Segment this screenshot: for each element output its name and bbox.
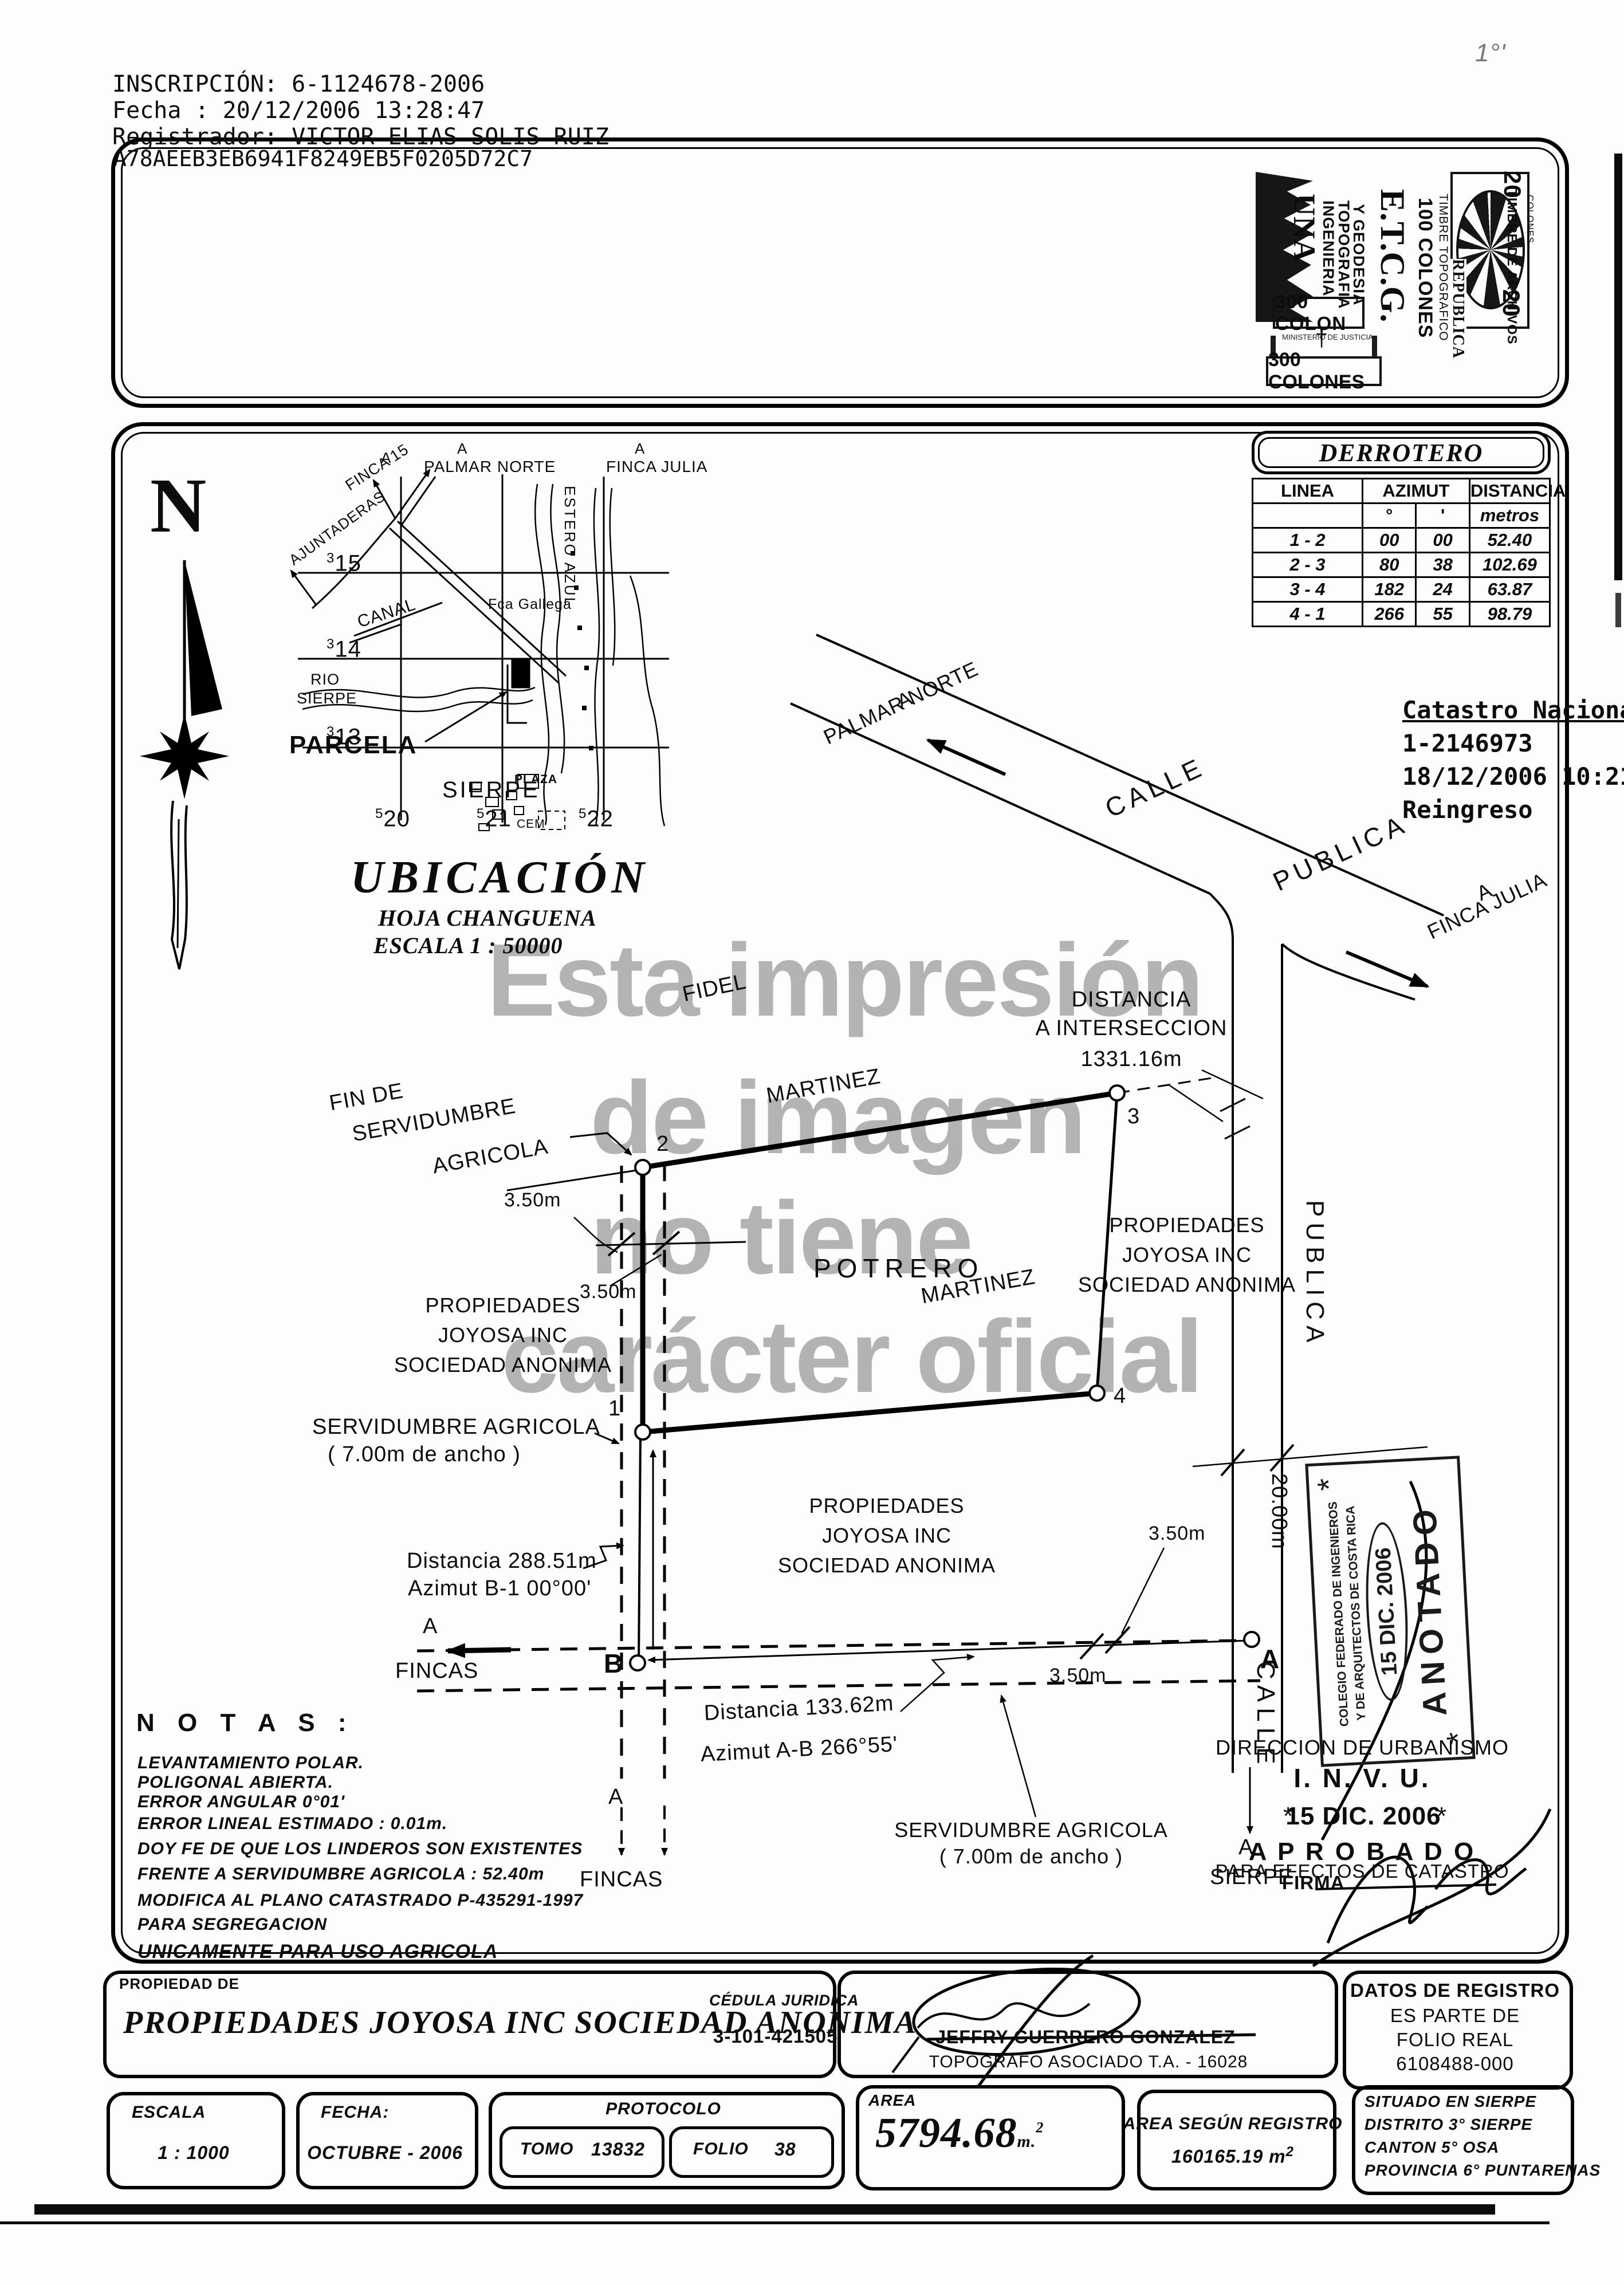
- label-point3: 3: [1127, 1106, 1140, 1128]
- derrotero-cell: 266: [1363, 602, 1416, 627]
- label-point1: 1: [608, 1398, 621, 1421]
- footer-surveyor-title: TOPÓGRAFO ASOCIADO T.A. - 16028: [929, 2053, 1248, 2071]
- stamp-ingenieria-text: INGENIERIA: [1320, 200, 1336, 297]
- stamp-300colones-text: 300 COLONES: [1268, 349, 1379, 394]
- label-owner-left2: JOYOSA INC: [438, 1324, 568, 1346]
- label-owner-bottom3: SOCIEDAD ANONIMA: [778, 1555, 996, 1576]
- north-letter: N: [150, 465, 207, 547]
- map-label-estero-azul: ESTERO AZUL: [562, 486, 577, 607]
- notas-l7: MODIFICA AL PLANO CATASTRADO P-435291-19…: [137, 1891, 583, 1910]
- notas-l5: DOY FE DE QUE LOS LINDEROS SON EXISTENTE…: [137, 1840, 583, 1858]
- notas-title: N O T A S :: [136, 1710, 355, 1736]
- label-point4: 4: [1114, 1385, 1126, 1408]
- notas-l4: ERROR LINEAL ESTIMADO : 0.01m.: [137, 1815, 447, 1833]
- hash-line: A78AEEB3EB6941F8249EB5F0205D72C7: [113, 148, 533, 171]
- label-owner-left3: SOCIEDAD ANONIMA: [394, 1354, 612, 1376]
- catastro-line3: 18/12/2006 10:21:33: [1402, 764, 1624, 789]
- stamp-geodesia-text: Y GEODESIA: [1351, 204, 1367, 306]
- stamp-republica-text: REPUBLICA: [1450, 259, 1466, 359]
- derrotero-row: 4 - 12665598.79: [1253, 602, 1550, 627]
- derrotero-cell: 63.87: [1469, 577, 1550, 602]
- footer-situado4: PROVINCIA 6° PUNTARENAS: [1365, 2162, 1601, 2178]
- stamp-colones-small: COLONES: [1524, 195, 1534, 243]
- ubicacion-hoja: HOJA CHANGUENA: [378, 906, 597, 930]
- label-servidumbre1b: ( 7.00m de ancho ): [328, 1444, 521, 1466]
- footer-registro-label: AREA SEGÚN REGISTRO: [1123, 2115, 1343, 2133]
- map-label-fca-gallega: Fca Gallega: [488, 597, 572, 612]
- anotado-star1: *: [1310, 1477, 1347, 1492]
- derrotero-title: DERROTERO: [1319, 438, 1484, 467]
- footer-situado2: DISTRITO 3° SIERPE: [1365, 2116, 1532, 2133]
- footer-escala-label: ESCALA: [132, 2103, 206, 2122]
- notas-l6: FRENTE A SERVIDUMBRE AGRICOLA : 52.40m: [137, 1865, 544, 1883]
- derrotero-cell: 00: [1363, 528, 1416, 553]
- registrar-line: Registrador: VICTOR ELIAS SOLIS RUIZ: [112, 125, 609, 149]
- invu-firma: FIRMA: [1282, 1873, 1344, 1893]
- footer-area-value: 5794.68m.2: [875, 2111, 1044, 2156]
- stamp-archivos-text: TIMBRE DE ARCHIVOS: [1505, 189, 1519, 344]
- map-label-a3: A: [635, 441, 645, 457]
- map-label-rio: RIO: [310, 671, 340, 687]
- derrotero-col-distancia: DISTANCIA: [1469, 479, 1550, 504]
- derrotero-cell: 52.40: [1469, 528, 1550, 553]
- footer-escala-value: 1 : 1000: [158, 2144, 229, 2163]
- label-azimut-b1: Azimut B-1 00°00': [408, 1578, 591, 1600]
- label-dist-b1: Distancia 288.51m: [407, 1550, 597, 1573]
- map-grid-522: 522: [579, 807, 614, 831]
- invu-efectos: PARA EFECTOS DE CATASTRO: [1216, 1862, 1509, 1882]
- catastro-line1: Catastro Nacional: [1402, 698, 1624, 723]
- map-grid-521: 521: [477, 807, 512, 831]
- label-20m: 20.00m: [1267, 1473, 1290, 1549]
- label-owner-bottom2: JOYOSA INC: [822, 1525, 951, 1547]
- justice-stamp-cross-icon: †: [1315, 327, 1328, 351]
- notas-l9: UNICAMENTE PARA USO AGRICOLA: [137, 1942, 498, 1962]
- footer-datos2: ES PARTE DE: [1390, 2006, 1520, 2026]
- label-350-2: 3.50m: [580, 1282, 637, 1303]
- map-grid-520: 520: [375, 807, 410, 831]
- handwritten-corner-mark: 1°': [1475, 40, 1505, 66]
- label-350-3: 3.50m: [1149, 1524, 1206, 1544]
- derrotero-row: 1 - 2000052.40: [1253, 528, 1550, 553]
- ubicacion-escala: ESCALA 1 : 50000: [373, 934, 563, 958]
- label-owner-bottom1: PROPIEDADES: [809, 1495, 964, 1517]
- footer-registro-value: 160165.19 m2: [1171, 2145, 1294, 2166]
- footer-datos4: 6108488-000: [1396, 2054, 1514, 2074]
- invu-direccion: DIRECCION DE URBANISMO: [1216, 1737, 1509, 1759]
- derrotero-row: 2 - 38038102.69: [1253, 553, 1550, 577]
- vertex-markers: [630, 1086, 1259, 1670]
- footer-registro-area-box: [1137, 2090, 1336, 2190]
- footer-propiedad-de: PROPIEDAD DE: [119, 1976, 239, 1992]
- ubicacion-title: UBICACIÓN: [351, 854, 649, 902]
- footer-surveyor-name: JEFFRY GUERRERO GONZALEZ: [935, 2028, 1236, 2047]
- map-label-cem: CEM: [517, 818, 545, 831]
- derrotero-cell: 1 - 2: [1253, 528, 1363, 553]
- derrotero-cell: 24: [1416, 577, 1469, 602]
- map-label-rio-sierpe: SIERPE: [297, 690, 357, 706]
- notas-l2: POLIGONAL ABIERTA.: [137, 1773, 333, 1792]
- label-owner-right2: JOYOSA INC: [1122, 1244, 1252, 1266]
- footer-fecha-label: FECHA:: [321, 2103, 389, 2122]
- footer-datos3: FOLIO REAL: [1397, 2030, 1513, 2050]
- label-a-fincas-bottom-a: A: [608, 1786, 623, 1809]
- derrotero-cell: 00: [1416, 528, 1469, 553]
- scanned-cadastral-plan: INSCRIPCIÓN: 6-1124678-2006 Fecha : 20/1…: [0, 0, 1624, 2285]
- stamp-etcg-text: E.T.C.G.: [1374, 189, 1410, 323]
- label-point2: 2: [656, 1133, 669, 1156]
- footer-tomo-label: TOMO: [520, 2140, 573, 2158]
- derrotero-cell: 55: [1416, 602, 1469, 627]
- anotado-word: ANOTADO: [1405, 1501, 1454, 1717]
- map-grid-315: 315: [327, 551, 361, 575]
- derrotero-table: DERROTERO LINEA AZIMUT DISTANCIA ° ' met…: [1252, 431, 1551, 627]
- justice-stamp-band: 300 COLONES: [1266, 356, 1382, 386]
- map-label-palmar: PALMAR NORTE: [424, 458, 556, 475]
- label-publica-vertical: PUBLICA: [1301, 1200, 1328, 1348]
- stamp-una-text: UNA: [1288, 194, 1320, 262]
- label-potrero: POTRERO: [813, 1254, 984, 1282]
- map-label-plaza: PLAZA: [514, 773, 557, 786]
- label-a-fincas-bottom: FINCAS: [580, 1869, 663, 1891]
- derrotero-cell: 80: [1363, 553, 1416, 577]
- label-servidumbre1a: SERVIDUMBRE AGRICOLA: [312, 1416, 600, 1439]
- stamp-20-top: 20: [1500, 171, 1525, 199]
- stamp-100colones-text: 100 COLONES: [1414, 198, 1435, 338]
- footer-folio-value: 38: [774, 2140, 796, 2160]
- stamp-timbre-topografico-text: TIMBRE TOPOGRAFICO: [1437, 194, 1449, 341]
- derrotero-sub-metros: metros: [1469, 504, 1550, 528]
- label-350-4: 3.50m: [1049, 1666, 1107, 1686]
- footer-cedula-label: CÉDULA JURIDICA: [709, 1992, 859, 2008]
- label-servidumbre2b: ( 7.00m de ancho ): [939, 1846, 1123, 1867]
- footer-cedula-value: 3-101-421505: [713, 2027, 838, 2047]
- derrotero-cell: 98.79: [1469, 602, 1550, 627]
- label-owner-right3: SOCIEDAD ANONIMA: [1078, 1274, 1296, 1296]
- derrotero-cell: 102.69: [1469, 553, 1550, 577]
- anotado-date: 15 DIC. 2006: [1362, 1521, 1411, 1702]
- footer-fecha-value: OCTUBRE - 2006: [307, 2144, 463, 2163]
- label-pointA: A: [1260, 1645, 1280, 1673]
- footer-area-label: AREA: [868, 2092, 916, 2109]
- derrotero-cell: 182: [1363, 577, 1416, 602]
- label-distancia3: 1331.16m: [1080, 1048, 1182, 1071]
- justice-stamp: MINISTERIO DE JUSTICIA † 300 COLONES: [1266, 327, 1382, 385]
- derrotero-row: 3 - 41822463.87: [1253, 577, 1550, 602]
- map-grid-314: 314: [327, 637, 361, 661]
- footer-protocolo-label: PROTOCOLO: [605, 2100, 721, 2118]
- label-owner-right1: PROPIEDADES: [1109, 1214, 1264, 1236]
- footer-datos1: DATOS DE REGISTRO: [1350, 1981, 1560, 2001]
- map-label-a2: A: [457, 441, 467, 457]
- catastro-line2: 1-2146973: [1402, 731, 1533, 756]
- invu-name: I. N. V. U.: [1293, 1764, 1430, 1792]
- anotado-stamp: COLEGIO FEDERADO DE INGENIEROS Y DE ARQU…: [1305, 1456, 1475, 1767]
- derrotero-sub-blank: [1253, 504, 1363, 528]
- derrotero-sub-min: ': [1416, 504, 1469, 528]
- derrotero-cell: 2 - 3: [1253, 553, 1363, 577]
- label-distancia1: DISTANCIA: [1072, 989, 1192, 1012]
- invu-star-right: *: [1437, 1803, 1447, 1830]
- map-grid-313: 313: [327, 725, 361, 749]
- derrotero-cell: 4 - 1: [1253, 602, 1363, 627]
- date-line: Fecha : 20/12/2006 13:28:47: [112, 99, 485, 123]
- derrotero-cell: 3 - 4: [1253, 577, 1363, 602]
- stamp-300colon-box: 300 COLON: [1273, 297, 1365, 329]
- footer-situado3: CANTON 5° OSA: [1365, 2139, 1499, 2156]
- catastro-line4: Reingreso: [1402, 797, 1533, 823]
- footer-tomo-value: 13832: [591, 2140, 645, 2160]
- invu-date: 15 DIC. 2006: [1285, 1803, 1441, 1830]
- label-350-1: 3.50m: [504, 1190, 561, 1211]
- footer-folio-label: FOLIO: [693, 2140, 749, 2158]
- map-label-julia: FINCA JULIA: [606, 458, 707, 475]
- label-owner-left1: PROPIEDADES: [425, 1295, 580, 1316]
- derrotero-col-azimut: AZIMUT: [1363, 479, 1470, 504]
- derrotero-sub-deg: °: [1363, 504, 1416, 528]
- label-servidumbre2a: SERVIDUMBRE AGRICOLA: [894, 1819, 1167, 1841]
- notas-l8: PARA SEGREGACION: [137, 1916, 327, 1934]
- label-pointB: B: [604, 1650, 623, 1677]
- derrotero-cell: 38: [1416, 553, 1469, 577]
- label-a-fincas-left-a: A: [423, 1615, 438, 1638]
- notas-l3: ERROR ANGULAR 0°01': [137, 1793, 345, 1811]
- inscription-line: INSCRIPCIÓN: 6-1124678-2006: [112, 72, 485, 96]
- derrotero-rows: 1 - 2000052.402 - 38038102.693 - 4182246…: [1253, 528, 1550, 627]
- derrotero-col-linea: LINEA: [1253, 479, 1363, 504]
- footer-situado1: SITUADO EN SIERPE: [1365, 2093, 1536, 2110]
- north-arrow: [135, 560, 234, 969]
- label-distancia2: A INTERSECCION: [1036, 1017, 1228, 1040]
- notas-l1: LEVANTAMIENTO POLAR.: [137, 1754, 364, 1772]
- stamp-20-bottom: 20: [1499, 289, 1524, 317]
- label-a-fincas-left: FINCAS: [395, 1660, 478, 1683]
